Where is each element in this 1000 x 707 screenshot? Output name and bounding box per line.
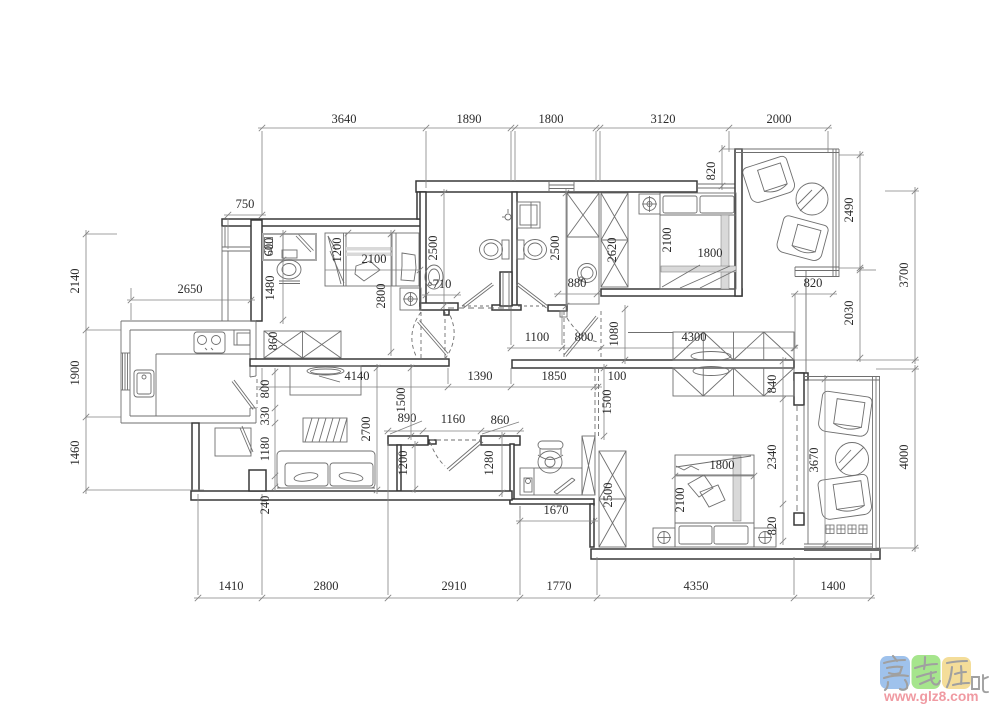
svg-text:240: 240	[258, 496, 272, 515]
svg-text:820: 820	[704, 162, 718, 181]
svg-text:4140: 4140	[345, 369, 370, 383]
svg-text:710: 710	[433, 277, 452, 291]
svg-text:www.glz8.com: www.glz8.com	[883, 689, 979, 704]
svg-text:1800: 1800	[698, 246, 723, 260]
svg-text:2030: 2030	[842, 301, 856, 326]
svg-text:2340: 2340	[765, 445, 779, 470]
svg-text:1200: 1200	[330, 238, 344, 263]
svg-text:1160: 1160	[441, 412, 466, 426]
svg-text:1670: 1670	[544, 503, 569, 517]
svg-text:2800: 2800	[314, 579, 339, 593]
svg-text:1890: 1890	[457, 112, 482, 126]
svg-text:330: 330	[258, 407, 272, 426]
svg-text:2800: 2800	[374, 284, 388, 309]
svg-text:1500: 1500	[600, 390, 614, 415]
svg-text:880: 880	[568, 276, 587, 290]
svg-text:3640: 3640	[332, 112, 357, 126]
svg-text:2500: 2500	[426, 236, 440, 261]
svg-text:4300: 4300	[682, 330, 707, 344]
svg-text:2000: 2000	[767, 112, 792, 126]
svg-text:2100: 2100	[362, 252, 387, 266]
svg-text:1100: 1100	[525, 330, 550, 344]
svg-text:2100: 2100	[673, 488, 687, 513]
svg-text:2620: 2620	[605, 238, 619, 263]
svg-text:1080: 1080	[607, 322, 621, 347]
svg-text:1280: 1280	[482, 451, 496, 476]
svg-text:1850: 1850	[542, 369, 567, 383]
svg-text:2490: 2490	[842, 198, 856, 223]
svg-text:1900: 1900	[68, 361, 82, 386]
svg-text:800: 800	[575, 330, 594, 344]
svg-text:820: 820	[765, 517, 779, 536]
svg-text:4350: 4350	[684, 579, 709, 593]
svg-text:600: 600	[262, 238, 276, 257]
svg-text:1770: 1770	[547, 579, 572, 593]
svg-text:840: 840	[765, 375, 779, 394]
svg-text:1410: 1410	[219, 579, 244, 593]
svg-text:2500: 2500	[548, 236, 562, 261]
svg-text:3700: 3700	[897, 263, 911, 288]
svg-text:820: 820	[804, 276, 823, 290]
svg-text:1180: 1180	[258, 437, 272, 462]
svg-text:860: 860	[491, 413, 510, 427]
svg-text:860: 860	[266, 332, 280, 351]
svg-text:1500: 1500	[394, 388, 408, 413]
svg-text:2100: 2100	[660, 228, 674, 253]
svg-text:1460: 1460	[68, 441, 82, 466]
svg-text:1480: 1480	[263, 276, 277, 301]
svg-text:1390: 1390	[468, 369, 493, 383]
svg-text:3120: 3120	[651, 112, 676, 126]
svg-text:3670: 3670	[807, 448, 821, 473]
svg-text:1200: 1200	[396, 451, 410, 476]
svg-text:800: 800	[258, 380, 272, 399]
svg-text:2650: 2650	[178, 282, 203, 296]
svg-text:2500: 2500	[601, 483, 615, 508]
svg-text:4000: 4000	[897, 445, 911, 470]
svg-text:750: 750	[236, 197, 255, 211]
svg-text:1800: 1800	[539, 112, 564, 126]
svg-text:2140: 2140	[68, 269, 82, 294]
svg-text:1400: 1400	[821, 579, 846, 593]
svg-text:100: 100	[608, 369, 627, 383]
svg-text:2700: 2700	[359, 417, 373, 442]
svg-text:2910: 2910	[442, 579, 467, 593]
svg-text:1800: 1800	[710, 458, 735, 472]
